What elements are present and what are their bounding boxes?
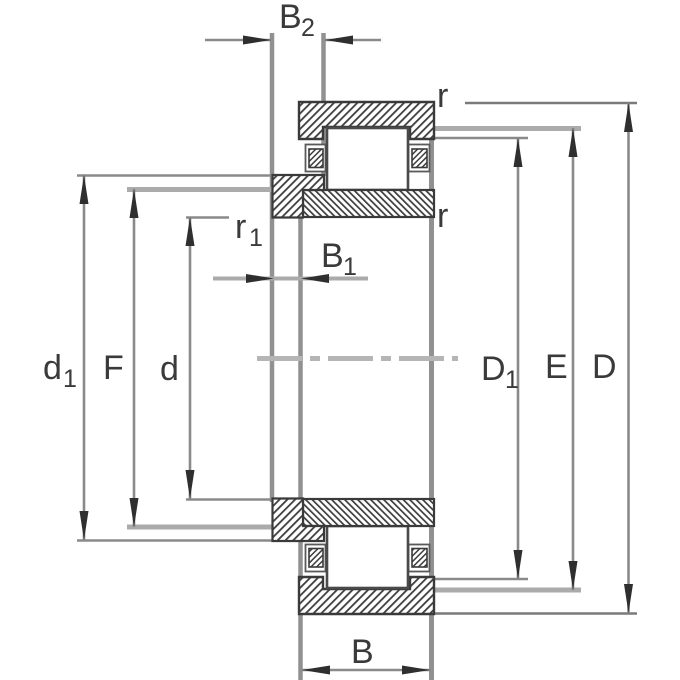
inner-ring-top (303, 190, 434, 217)
cage-bar-bottom-left (309, 549, 323, 568)
label-E: E (545, 348, 568, 386)
label-d: d (160, 350, 179, 388)
cage-bar-top-right (412, 149, 427, 168)
label-r-mid: r (437, 197, 448, 235)
cage-bar-bottom-right (412, 549, 427, 568)
diagram-canvas: B2 r r r1 B1 d1 F d D1 E D B (0, 0, 680, 680)
cage-bar-top-left (309, 149, 323, 168)
label-r-top: r (437, 77, 448, 115)
label-F: F (103, 349, 124, 387)
label-D: D (592, 348, 617, 386)
roller-top (327, 128, 408, 190)
bearing-dimension-diagram: B2 r r r1 B1 d1 F d D1 E D B (0, 0, 680, 680)
roller-bottom (327, 526, 408, 588)
label-B: B (351, 633, 374, 671)
inner-ring-bottom (303, 499, 434, 526)
